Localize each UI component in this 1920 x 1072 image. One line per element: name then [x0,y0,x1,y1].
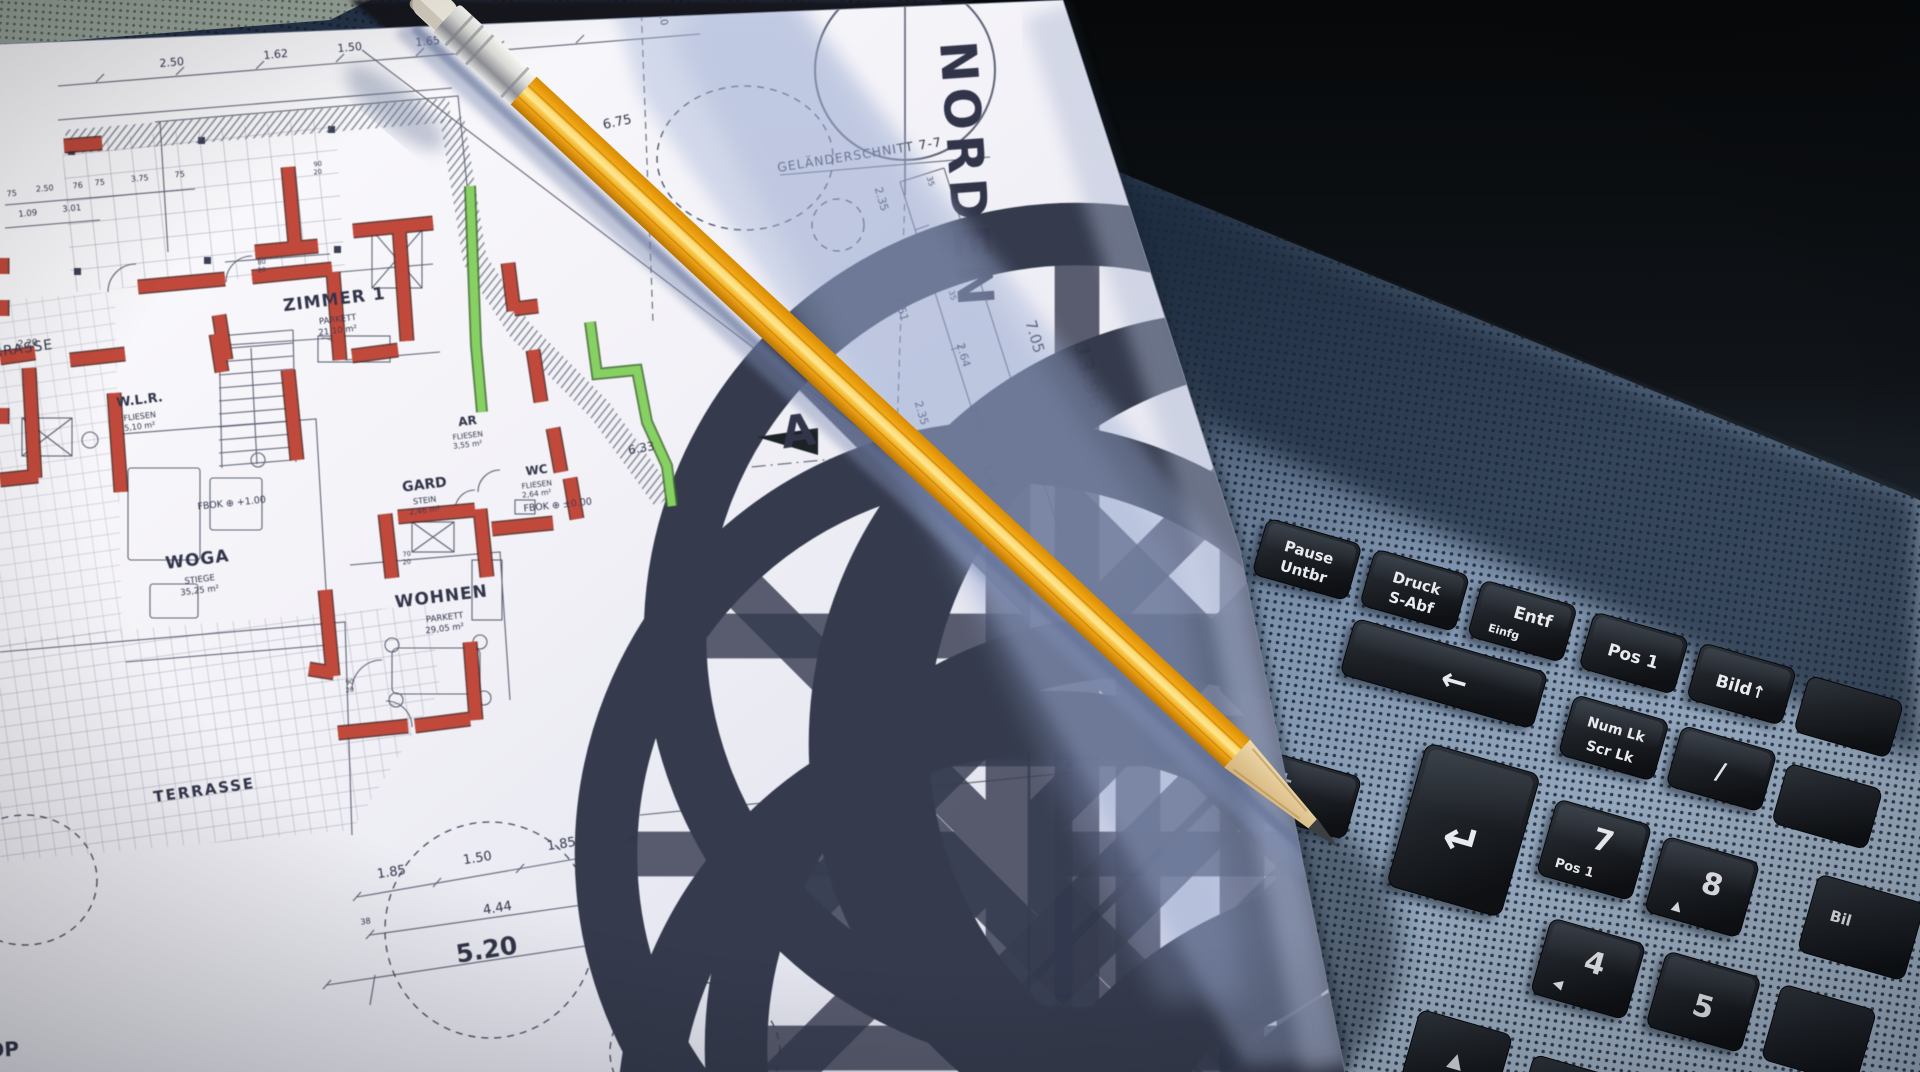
scene-svg: Pause Untbr Druck S-Abf Entf Einfg Pos 1… [0,0,1920,1072]
vignette [0,0,1920,1072]
photo-scene: Pause Untbr Druck S-Abf Entf Einfg Pos 1… [0,0,1920,1072]
